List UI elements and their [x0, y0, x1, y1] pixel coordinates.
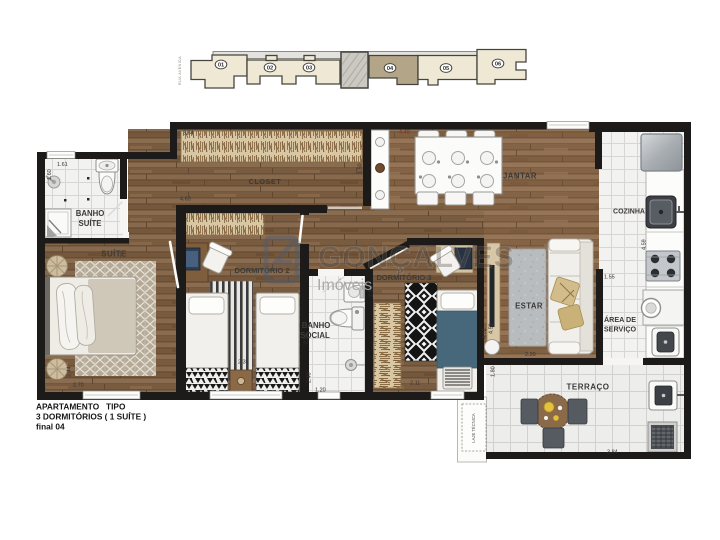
svg-text:03: 03: [306, 66, 312, 72]
svg-text:1.20: 1.20: [315, 388, 326, 394]
svg-text:1.60: 1.60: [47, 169, 53, 180]
svg-text:1.55: 1.55: [604, 275, 615, 281]
svg-text:4.02: 4.02: [482, 328, 488, 339]
svg-text:SUÍTE: SUÍTE: [101, 250, 127, 259]
svg-text:Imóveis: Imóveis: [317, 277, 372, 294]
svg-text:LAJE TÉCNICA: LAJE TÉCNICA: [471, 413, 476, 443]
svg-text:APARTAMENTO TIPO: APARTAMENTO TIPO: [36, 402, 126, 412]
svg-text:4.59: 4.59: [642, 239, 648, 250]
svg-text:3.64: 3.64: [183, 131, 194, 137]
svg-text:3.84: 3.84: [607, 450, 618, 456]
svg-text:2.11: 2.11: [410, 381, 420, 387]
svg-text:05: 05: [443, 66, 449, 72]
svg-text:4.50: 4.50: [489, 323, 495, 334]
svg-text:COZINHA: COZINHA: [613, 209, 645, 216]
svg-text:SUÍTE: SUÍTE: [79, 219, 102, 228]
svg-text:2.44: 2.44: [67, 366, 73, 377]
svg-text:3 DORMITÓRIOS ( 1 SUÍTE ): 3 DORMITÓRIOS ( 1 SUÍTE ): [36, 411, 146, 422]
svg-text:4.40: 4.40: [399, 130, 410, 136]
svg-text:2.40: 2.40: [307, 372, 313, 383]
svg-text:RUA AVENIDA: RUA AVENIDA: [178, 56, 182, 85]
svg-text:TERRAÇO: TERRAÇO: [566, 383, 609, 392]
svg-text:ESTAR: ESTAR: [515, 302, 543, 311]
svg-text:06: 06: [495, 62, 501, 68]
svg-text:JANTAR: JANTAR: [503, 172, 537, 181]
svg-text:CLOSET: CLOSET: [249, 177, 282, 186]
svg-text:2.70: 2.70: [73, 383, 84, 389]
svg-text:01: 01: [218, 63, 224, 69]
svg-text:1.80: 1.80: [491, 366, 497, 377]
svg-text:SERVIÇO: SERVIÇO: [604, 325, 637, 334]
svg-text:ÁREA DE: ÁREA DE: [604, 315, 636, 324]
svg-text:2.56: 2.56: [304, 333, 310, 344]
svg-text:BANHO: BANHO: [302, 321, 331, 330]
svg-text:final 04: final 04: [36, 422, 65, 432]
svg-text:1.50: 1.50: [358, 163, 364, 174]
svg-text:02: 02: [267, 66, 273, 72]
svg-text:2.20: 2.20: [525, 352, 536, 358]
svg-text:DORMITÓRIO 3: DORMITÓRIO 3: [376, 273, 431, 282]
svg-text:1.61: 1.61: [57, 162, 68, 168]
svg-text:BANHO: BANHO: [76, 209, 105, 218]
svg-text:DORMITÓRIO 2: DORMITÓRIO 2: [234, 266, 289, 275]
svg-text:4.63: 4.63: [180, 197, 191, 203]
svg-text:2.35: 2.35: [238, 360, 249, 366]
svg-text:GONÇALVES: GONÇALVES: [318, 241, 515, 274]
svg-text:04: 04: [387, 66, 394, 72]
